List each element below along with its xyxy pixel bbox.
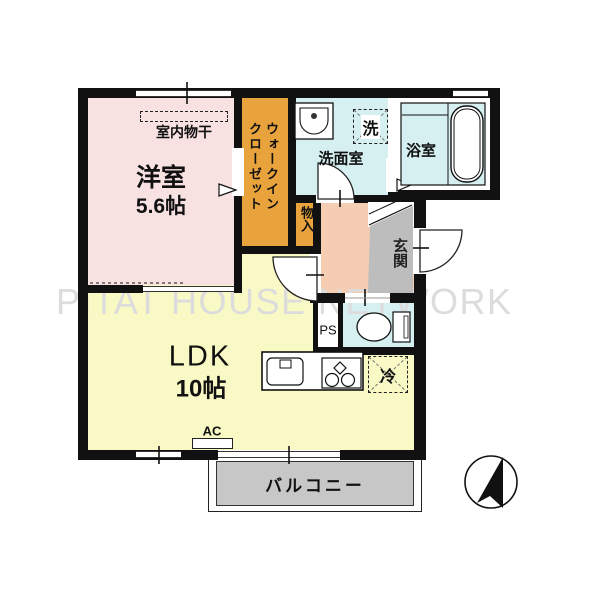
- window: [136, 451, 181, 458]
- wall: [313, 301, 318, 347]
- pipe-space-label: PS: [319, 323, 336, 338]
- entrance-door-opening: [412, 228, 428, 274]
- sliding-door: [143, 286, 234, 292]
- walk-in-closet-label: ウォークイン クローゼット: [246, 122, 280, 254]
- balcony-label: バルコニー: [265, 471, 365, 496]
- washer-space: 洗: [353, 109, 388, 144]
- entrance-label: 玄関: [389, 238, 410, 268]
- ldk-size: 10帖: [176, 369, 227, 404]
- compass-north-arrow: [477, 457, 503, 508]
- fridge-label: 冷: [379, 363, 397, 387]
- ac-unit: [192, 438, 233, 449]
- western-room-label: 洋室: [136, 158, 186, 194]
- wall: [296, 195, 316, 203]
- western-room-size: 5.6帖: [136, 190, 186, 220]
- bathroom-door-opening: [386, 158, 398, 192]
- window: [136, 90, 231, 97]
- wall: [313, 347, 426, 355]
- wall: [78, 88, 88, 460]
- compass-circle: [465, 456, 517, 508]
- wall: [490, 88, 500, 200]
- washer-label: 洗: [361, 115, 379, 139]
- washroom-door-opening: [316, 195, 354, 203]
- ac-label: AC: [203, 424, 222, 439]
- fridge-space: 冷: [368, 356, 408, 393]
- ldk-door-opening: [309, 254, 321, 293]
- closet-opening: [232, 148, 244, 196]
- floor-plan: バルコニー PITAT HOUSE NETWORK: [0, 0, 600, 600]
- balcony-sliding-window: [218, 451, 340, 458]
- indoor-drying-zone: [140, 111, 228, 122]
- wall: [354, 195, 416, 203]
- window: [453, 90, 488, 97]
- wall: [288, 98, 296, 254]
- washroom-label: 洗面室: [318, 148, 363, 169]
- storage-label: 物入: [297, 206, 316, 232]
- bathroom-label: 浴室: [406, 140, 436, 161]
- wall: [338, 301, 343, 347]
- toilet-door-opening: [345, 293, 390, 303]
- balcony-area: バルコニー: [216, 461, 414, 506]
- wall: [88, 285, 143, 293]
- indoor-drying-label: 室内物干: [156, 122, 212, 142]
